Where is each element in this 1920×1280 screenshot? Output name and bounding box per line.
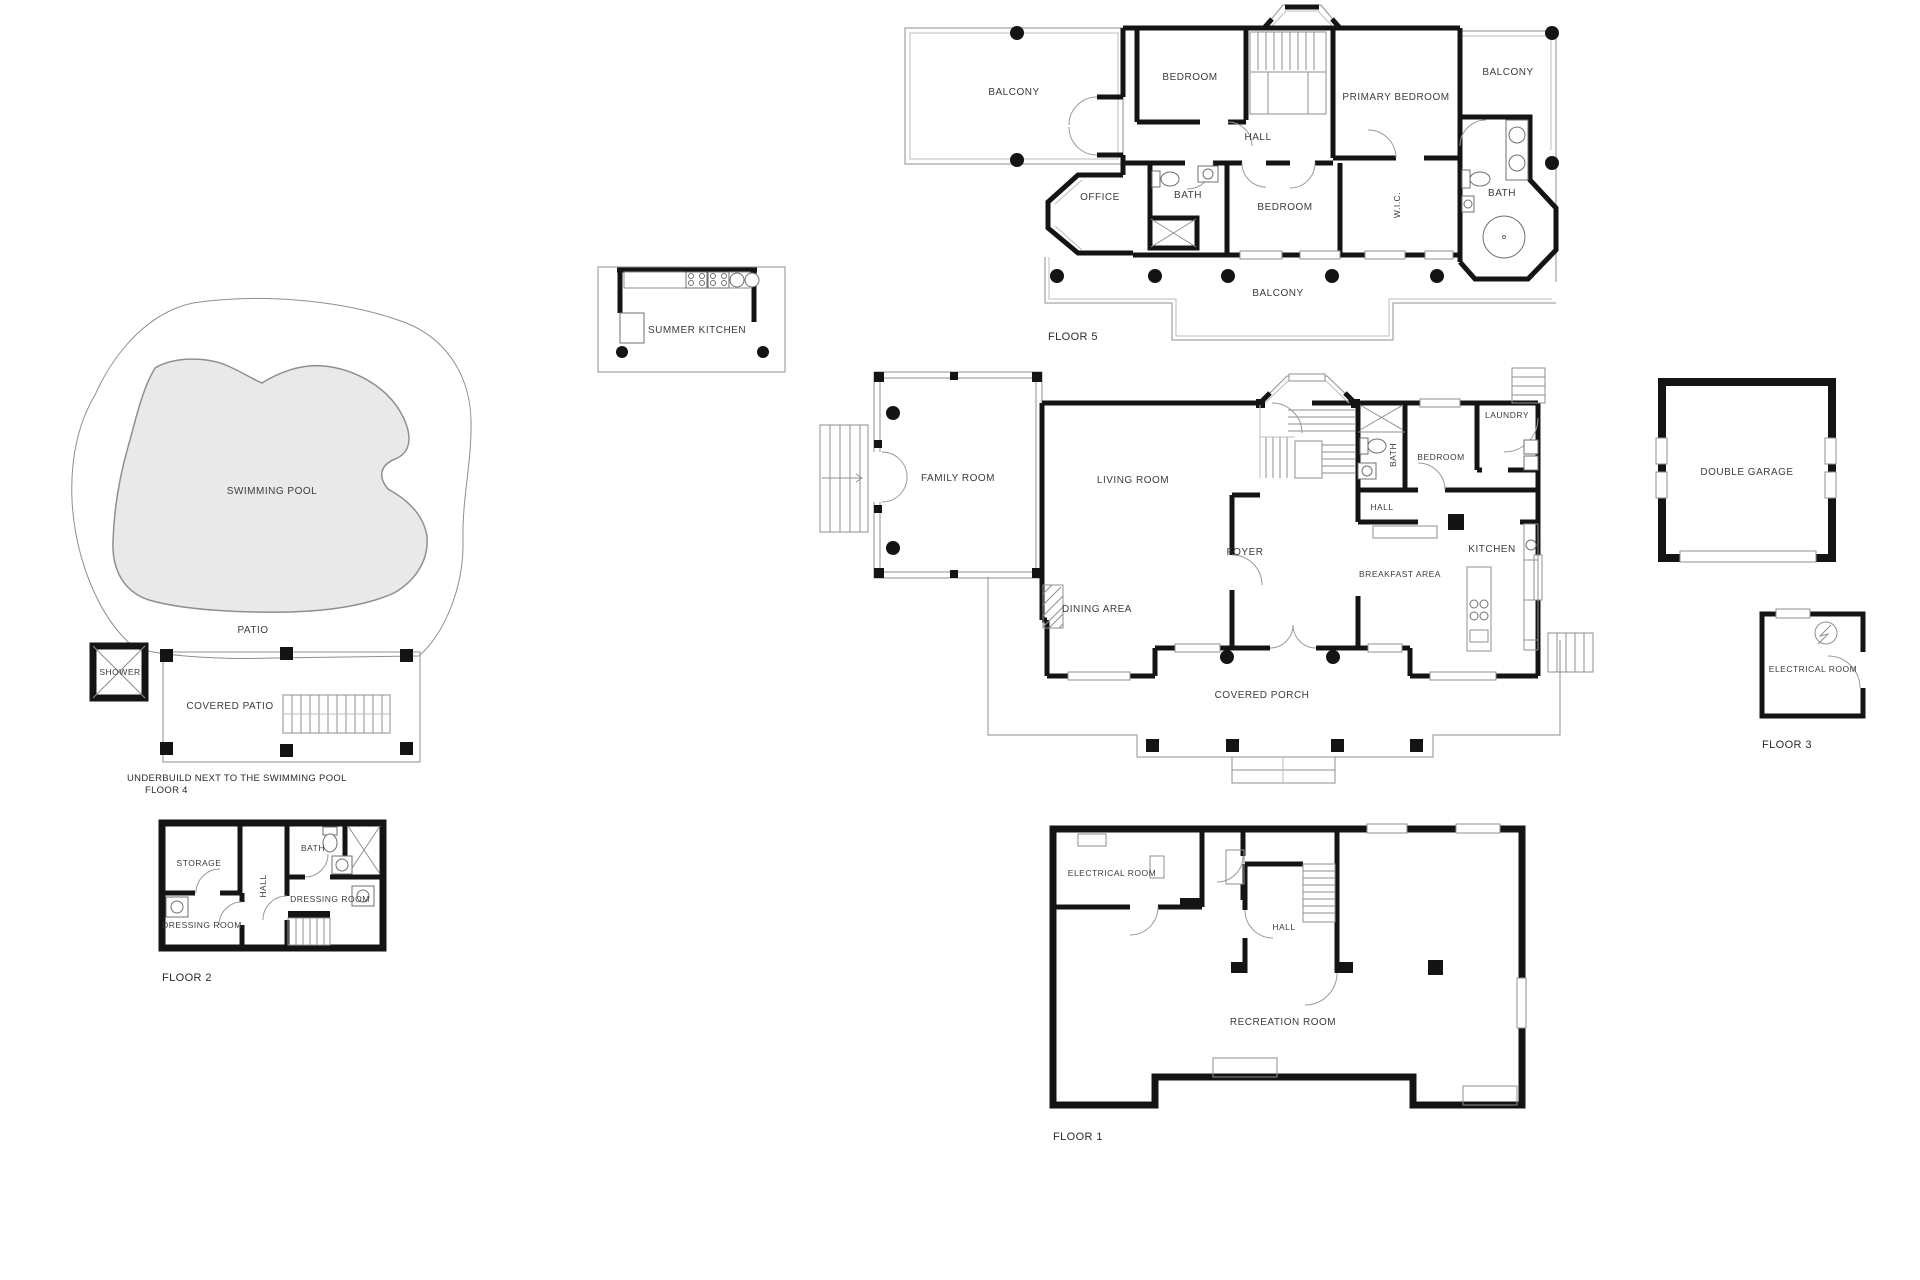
room-label-wic: W.I.C.: [1392, 192, 1402, 218]
garage-windows: [1656, 438, 1836, 562]
room-label-family-room: FAMILY ROOM: [921, 473, 995, 484]
floor5-door-arcs: [1069, 97, 1486, 189]
room-label-balcony-bottom: BALCONY: [1252, 288, 1303, 299]
floor2-label: FLOOR 2: [162, 972, 212, 984]
exterior-stairs-left: [820, 425, 868, 532]
room-label-balcony-right: BALCONY: [1482, 67, 1533, 78]
summer-kitchen-columns: [616, 346, 769, 358]
patio-stairs: [283, 695, 390, 733]
main-bath-fixtures: [1358, 438, 1386, 479]
room-label-bath-right: BATH: [1488, 188, 1516, 199]
pool-area-plan: SWIMMING POOL PATIO SHOWER COVERED PATIO…: [72, 298, 471, 796]
room-label-patio: PATIO: [237, 625, 268, 636]
room-label-laundry: LAUNDRY: [1485, 410, 1529, 420]
main-floor-plan: FAMILY ROOM LIVING ROOM DINING AREA FOYE…: [820, 368, 1593, 783]
floor5-plan: BALCONY BEDROOM PRIMARY BEDROOM BALCONY …: [905, 5, 1559, 343]
sink-icon: [730, 273, 744, 287]
room-label-living-room: LIVING ROOM: [1097, 475, 1169, 486]
floor3-plan: DOUBLE GARAGE ELECTRICAL ROOM FLOOR 3: [1656, 382, 1867, 751]
room-label-office: OFFICE: [1080, 192, 1120, 203]
floor-plan-canvas: BALCONY BEDROOM PRIMARY BEDROOM BALCONY …: [0, 0, 1920, 1280]
room-label-storage: STORAGE: [177, 858, 222, 868]
room-label-bath-main: BATH: [1388, 443, 1398, 467]
room-label-dressing-right: DRESSING ROOM: [290, 894, 370, 904]
sideboard: [1373, 526, 1437, 538]
floor1-windows: [1367, 824, 1526, 1028]
floor1-plan: ELECTRICAL ROOM HALL RECREATION ROOM FLO…: [1053, 824, 1526, 1143]
room-label-dining-area: DINING AREA: [1062, 604, 1132, 615]
room-label-covered-patio: COVERED PATIO: [186, 701, 273, 712]
room-label-primary-bedroom: PRIMARY BEDROOM: [1342, 92, 1449, 103]
floor5-walls: [1048, 7, 1556, 279]
underbuild-caption: UNDERBUILD NEXT TO THE SWIMMING POOL: [127, 773, 347, 784]
room-label-double-garage: DOUBLE GARAGE: [1700, 467, 1793, 478]
room-label-swimming-pool: SWIMMING POOL: [227, 486, 317, 497]
room-label-hall-main: HALL: [1370, 502, 1393, 512]
room-label-bedroom-lower: BEDROOM: [1257, 202, 1312, 213]
room-label-covered-porch: COVERED PORCH: [1215, 690, 1310, 701]
room-label-foyer: FOYER: [1227, 547, 1264, 558]
floor4-label: FLOOR 4: [145, 785, 188, 796]
main-walls: [1042, 403, 1538, 676]
room-label-hall5: HALL: [1244, 132, 1271, 143]
floor1-label: FLOOR 1: [1053, 1131, 1103, 1143]
room-label-bedroom-main: BEDROOM: [1417, 452, 1464, 462]
room-label-electrical3: ELECTRICAL ROOM: [1769, 664, 1857, 674]
room-label-bath-left: BATH: [1174, 190, 1202, 201]
vestibule-stairs: [1260, 405, 1355, 478]
room-label-bath2: BATH: [301, 843, 325, 853]
electrical-room-details: [1776, 609, 1867, 688]
island: [620, 313, 644, 343]
room-label-electrical1: ELECTRICAL ROOM: [1068, 868, 1156, 878]
floor3-label: FLOOR 3: [1762, 739, 1812, 751]
laundry-appliance: [1524, 440, 1538, 454]
room-label-hall2: HALL: [258, 874, 268, 897]
room-label-bedroom-top: BEDROOM: [1162, 72, 1217, 83]
room-label-dressing-left: DRESSING ROOM: [162, 920, 242, 930]
floor2-shower-glass: [348, 826, 380, 874]
floor1-walls: [1053, 829, 1443, 975]
floor1-stairs: [1303, 864, 1335, 922]
room-label-summer-kitchen: SUMMER KITCHEN: [648, 325, 746, 336]
room-label-shower: SHOWER: [99, 667, 140, 677]
summer-kitchen-plan: SUMMER KITCHEN: [598, 267, 785, 372]
room-label-balcony-left: BALCONY: [988, 87, 1039, 98]
electrical-symbol-icon: [1815, 622, 1837, 644]
laundry-appliance: [1524, 456, 1538, 470]
floor5-stairs: [1250, 32, 1326, 114]
room-label-breakfast-area: BREAKFAST AREA: [1359, 569, 1441, 579]
kitchen-island: [1467, 567, 1491, 651]
sink-icon: [745, 273, 759, 287]
room-label-recreation-room: RECREATION ROOM: [1230, 1017, 1336, 1028]
floor5-label: FLOOR 5: [1048, 331, 1098, 343]
floor-plan-page: { "page": { "background": "#ffffff" }, "…: [0, 0, 1920, 1280]
main-shower-glass: [1360, 405, 1403, 430]
room-label-kitchen: KITCHEN: [1468, 544, 1515, 555]
room-label-hall1: HALL: [1272, 922, 1295, 932]
floor2-plan: STORAGE BATH HALL DRESSING ROOM DRESSING…: [162, 823, 383, 984]
floor2-stairs: [288, 918, 330, 945]
